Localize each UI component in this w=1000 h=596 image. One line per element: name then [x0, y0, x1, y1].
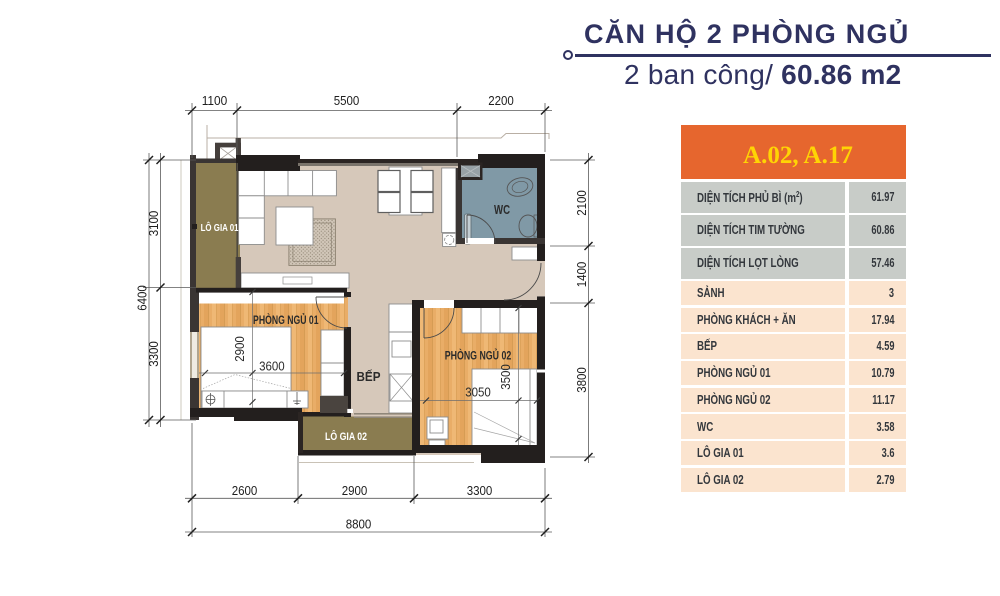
- svg-text:2200: 2200: [488, 93, 514, 108]
- svg-text:1100: 1100: [202, 93, 228, 108]
- svg-text:PHÒNG NGỦ 01: PHÒNG NGỦ 01: [253, 314, 319, 327]
- svg-text:PHÒNG NGỦ 02: PHÒNG NGỦ 02: [445, 349, 512, 362]
- svg-text:BẾP: BẾP: [357, 369, 381, 384]
- svg-text:1400: 1400: [574, 262, 589, 288]
- svg-text:3500: 3500: [498, 364, 513, 390]
- svg-text:2100: 2100: [574, 190, 589, 216]
- svg-text:3600: 3600: [259, 359, 285, 374]
- svg-text:3050: 3050: [465, 385, 491, 400]
- svg-text:2600: 2600: [232, 483, 258, 498]
- svg-text:3300: 3300: [467, 483, 493, 498]
- svg-text:5500: 5500: [334, 93, 360, 108]
- svg-text:3100: 3100: [146, 211, 161, 237]
- svg-text:8800: 8800: [346, 516, 372, 531]
- svg-text:LÔ GIA 02: LÔ GIA 02: [325, 430, 367, 443]
- svg-text:WC: WC: [494, 203, 510, 217]
- svg-text:3300: 3300: [146, 341, 161, 367]
- svg-text:3800: 3800: [574, 367, 589, 393]
- svg-text:2900: 2900: [342, 483, 368, 498]
- svg-text:2900: 2900: [232, 336, 247, 362]
- svg-text:6400: 6400: [135, 285, 150, 311]
- svg-text:LÔ GIA 01: LÔ GIA 01: [201, 221, 239, 234]
